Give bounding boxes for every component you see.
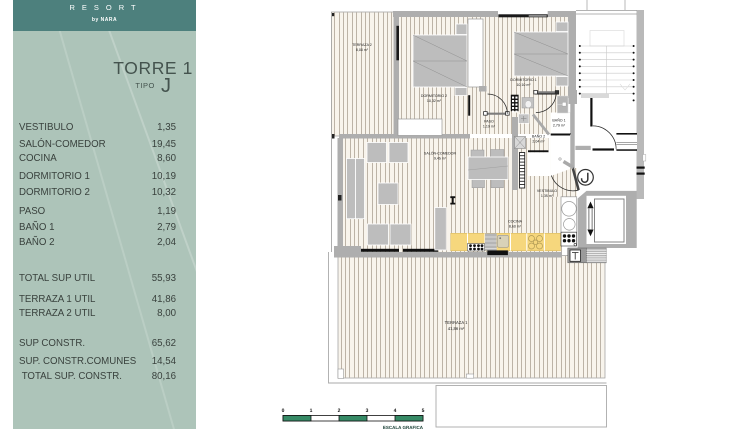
svg-text:BAÑO 2: BAÑO 2 (532, 134, 545, 139)
svg-text:DORMITORIO 2: DORMITORIO 2 (421, 94, 447, 98)
svg-text:9,45 m²: 9,45 m² (434, 157, 447, 161)
svg-text:8,00 m²: 8,00 m² (356, 48, 369, 52)
svg-text:TERRAZA 2: TERRAZA 2 (352, 43, 372, 47)
svg-text:4: 4 (394, 408, 397, 414)
svg-text:SALÓN-COMEDOR: SALÓN-COMEDOR (424, 151, 457, 156)
svg-text:DORMITORIO 1: DORMITORIO 1 (510, 78, 536, 82)
svg-text:ESCALA GRAFICA: ESCALA GRAFICA (383, 425, 424, 430)
svg-text:BAÑO 1: BAÑO 1 (552, 118, 565, 123)
svg-text:2: 2 (338, 408, 341, 414)
svg-text:0: 0 (282, 408, 285, 414)
svg-text:PASO: PASO (484, 120, 494, 124)
svg-text:10,32 m²: 10,32 m² (427, 99, 442, 103)
svg-text:1,19 m²: 1,19 m² (483, 125, 496, 129)
svg-text:1,35 m²: 1,35 m² (541, 194, 554, 198)
svg-text:TERRAZA 1: TERRAZA 1 (445, 320, 468, 325)
svg-text:3: 3 (366, 408, 369, 414)
svg-text:5: 5 (422, 408, 425, 414)
svg-text:10,10 m²: 10,10 m² (516, 83, 531, 87)
svg-text:41,86 m²: 41,86 m² (448, 326, 465, 331)
svg-text:COCINA: COCINA (508, 220, 523, 224)
svg-text:2,79 m²: 2,79 m² (553, 124, 566, 128)
svg-text:1: 1 (310, 408, 313, 414)
svg-text:2,04 m²: 2,04 m² (532, 140, 545, 144)
svg-text:VESTIBULO: VESTIBULO (537, 189, 557, 193)
svg-text:8,60 m²: 8,60 m² (509, 225, 522, 229)
